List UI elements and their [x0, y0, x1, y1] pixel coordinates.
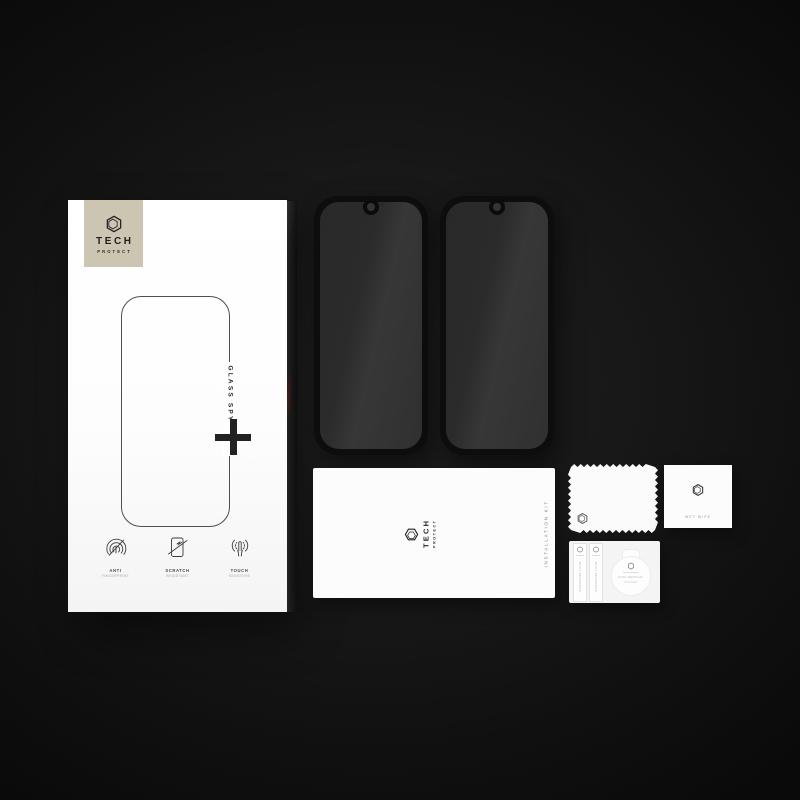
- brand-hexagon-icon: [627, 562, 635, 570]
- anti-fingerprint-icon: [103, 534, 129, 561]
- dust-removal-sticker: DUST REMOVAL STICKER: [611, 556, 651, 596]
- feature-label-line2: SENSITIVE: [215, 574, 265, 578]
- brand-subname: PROTECT: [433, 520, 437, 548]
- wet-wipe-label: WET WIPE: [664, 515, 732, 519]
- dust-absorber-label: DUST ABSORBER: [578, 562, 582, 592]
- scratch-resistant-icon: [165, 534, 191, 561]
- brand-name: TECH: [422, 519, 431, 548]
- plus-symbol: [230, 419, 237, 455]
- feature-icons-row: ANTI FINGERPRINT SCRATCH RESISTANT: [68, 534, 287, 578]
- brand-hexagon-icon: [691, 483, 705, 497]
- brand-subname: PROTECT: [97, 249, 132, 254]
- installation-kit-envelope: TECH PROTECT INSTALLATION KIT: [313, 468, 555, 598]
- glass-protector-1: [314, 196, 428, 455]
- brand-hexagon-icon: [404, 527, 420, 543]
- feature-label-line2: RESISTANT: [153, 574, 203, 578]
- divider: [592, 555, 600, 556]
- brand-name: TECH: [96, 236, 134, 247]
- touch-sensitive-icon: [227, 534, 253, 561]
- sticker-card: DUST ABSORBER DUST ABSORBER DUST REMOVAL…: [569, 541, 660, 603]
- product-line-label: GLASS SPY: [225, 366, 236, 422]
- feature-label-line1: TOUCH: [215, 568, 265, 573]
- installation-kit-label: INSTALLATION KIT: [543, 508, 550, 568]
- privacy-glass-surface: [320, 202, 422, 449]
- dust-absorber-label: DUST ABSORBER: [594, 562, 598, 592]
- divider: [623, 572, 639, 573]
- brand-hexagon-icon: [593, 546, 600, 553]
- brand-hexagon-icon: [577, 546, 584, 553]
- glass-protector-2: [440, 196, 554, 455]
- brand-hexagon-icon: [576, 512, 589, 525]
- camera-hole-cutout: [489, 199, 505, 215]
- feature-label-line1: SCRATCH: [153, 568, 203, 573]
- removal-sticker-label-line1: DUST REMOVAL: [612, 576, 650, 579]
- retail-box: TECH PROTECT GLASS SPY ANTI FINGERPRINT: [68, 200, 287, 612]
- feature-label-line1: ANTI: [91, 568, 141, 573]
- wet-wipe-sachet: WET WIPE: [664, 465, 732, 528]
- divider: [576, 555, 584, 556]
- brand-label: TECH PROTECT: [84, 200, 143, 267]
- phone-outline-graphic: [121, 296, 230, 527]
- feature-scratch-resistant: SCRATCH RESISTANT: [153, 534, 203, 578]
- dry-wipe: [568, 464, 658, 533]
- dust-absorber-strip: DUST ABSORBER: [589, 543, 603, 602]
- brand-logo-rotated: TECH PROTECT: [404, 515, 437, 555]
- camera-hole-cutout: [363, 199, 379, 215]
- removal-sticker-label-line2: STICKER: [612, 581, 650, 584]
- dust-absorber-strip: DUST ABSORBER: [573, 543, 587, 602]
- feature-label-line2: FINGERPRINT: [91, 574, 141, 578]
- product-photo-scene: TECH PROTECT GLASS SPY ANTI FINGERPRINT: [0, 0, 800, 800]
- privacy-glass-surface: [446, 202, 548, 449]
- brand-hexagon-icon: [104, 214, 124, 234]
- feature-touch-sensitive: TOUCH SENSITIVE: [215, 534, 265, 578]
- feature-anti-fingerprint: ANTI FINGERPRINT: [91, 534, 141, 578]
